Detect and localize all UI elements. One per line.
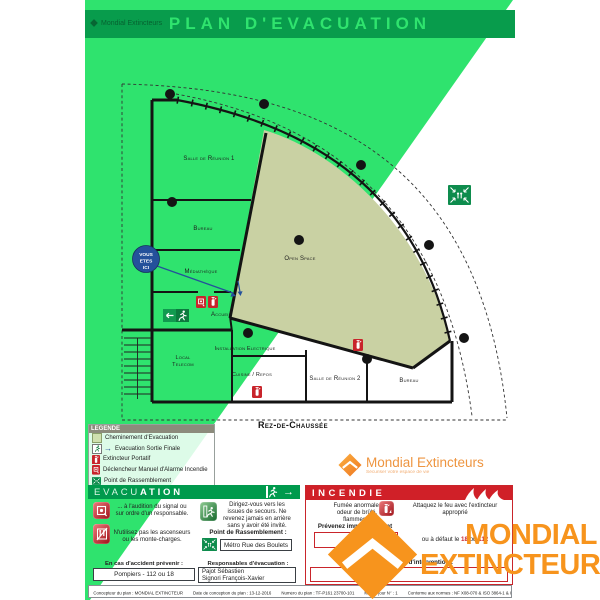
blue-arrow-icon: →	[104, 445, 112, 453]
mondial-diamond-icon	[338, 452, 362, 478]
incendie-title: INCENDIE	[312, 488, 464, 499]
watermark-diamond-icon	[326, 508, 419, 600]
instruction-elevator: N'utilisez pas les ascenseurs ou les mon…	[113, 530, 191, 544]
watermark-line1: MONDIAL	[420, 521, 597, 551]
exit-arrow-icon: →	[283, 486, 294, 498]
footer-bar: Concepteur du plan : MONDIAL EXTINCTEUR …	[88, 585, 512, 598]
legend-item-declencheur: Déclencheur Manuel d'Alarme Incendie	[89, 465, 214, 476]
extinguisher-icon	[92, 455, 100, 465]
mondial-diamond-icon	[90, 19, 98, 27]
room-label-salle-reunion-2: Salle de Réunion 2	[309, 376, 361, 382]
extinguisher-icon	[353, 339, 363, 351]
extinguisher-icon	[252, 386, 262, 398]
assembly-point-icon	[92, 477, 101, 485]
flames-icon	[464, 487, 506, 500]
room-label-bureau-2: Bureau	[399, 378, 418, 384]
instruction-signal: ... à l'audition du signal ou sur ordre …	[113, 504, 191, 518]
assembly-value-box: Métro Rue des Boulets	[220, 539, 292, 551]
evacuation-panel: EVACUATION → ... à l'audition du signal …	[88, 485, 300, 585]
evacuation-plan-poster: Mondial Extincteurs PLAN D'EVACUATION	[0, 0, 600, 600]
watermark-brand-text: MONDIAL EXTINCTEUR	[420, 521, 597, 580]
evacuation-title: EVACUATION	[94, 487, 265, 498]
exit-run-icon	[200, 502, 217, 521]
footer-concepteur: Concepteur du plan : MONDIAL EXTINCTEUR	[93, 588, 183, 598]
legend-item-extincteur: Extincteur Portatif	[89, 454, 214, 465]
brand-tagline: Sécuriser votre espace de vie	[366, 470, 460, 475]
title-banner: Mondial Extincteurs PLAN D'EVACUATION	[85, 10, 515, 38]
banner-brand-watermark: Mondial Extincteurs	[90, 19, 162, 27]
instruction-exits: Dirigez-vous vers les issues de secours.…	[220, 502, 294, 530]
incendie-header: INCENDIE	[306, 486, 512, 500]
alarm-icon	[92, 465, 100, 475]
evacuation-header: EVACUATION →	[88, 485, 300, 499]
assembly-point-icon	[448, 185, 471, 205]
legend: LEGENDE Cheminement d'Evacuation → Evacu…	[88, 424, 215, 487]
accident-label: En cas d'accident prévenir :	[93, 561, 195, 567]
alarm-signal-icon	[93, 502, 110, 519]
legend-item-cheminement: Cheminement d'Evacuation	[89, 433, 214, 444]
floor-label: Rez-de-Chaussée	[258, 420, 328, 430]
footer-normes: Conforme aux normes : NF X08-070 & ISO 3…	[408, 588, 512, 598]
footer-date: Date de conception du plan : 13-12-2016	[193, 588, 271, 598]
responsables-evac-box: Pajot Sébastien Signori François-Xavier	[198, 567, 296, 583]
brand-name: Mondial Extincteurs	[366, 455, 484, 470]
exit-man-icon	[92, 444, 102, 454]
assembly-point-icon	[202, 538, 217, 556]
accident-value-box: Pompiers - 112 ou 18	[93, 568, 195, 581]
legend-title: LEGENDE	[89, 425, 214, 433]
watermark-line2: EXTINCTEUR	[420, 551, 597, 581]
brand-logo: Mondial Extincteurs Sécuriser votre espa…	[338, 452, 484, 478]
no-elevator-icon	[93, 524, 110, 544]
banner-brand-name: Mondial Extincteurs	[101, 20, 162, 27]
legend-item-sortie-finale: → Evacuation Sortie Finale	[89, 444, 214, 455]
evacuation-path-swatch	[92, 433, 102, 443]
exit-man-icon	[265, 486, 279, 498]
assembly-label: Point de Rassemblement :	[200, 529, 296, 536]
footer-text: Concepteur du plan : MONDIAL EXTINCTEUR …	[89, 588, 512, 598]
